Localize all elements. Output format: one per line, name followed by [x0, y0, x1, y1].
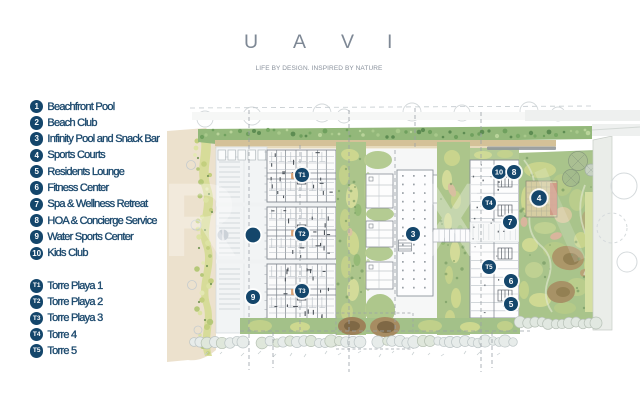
svg-text:8: 8 [512, 167, 517, 177]
svg-text:9: 9 [251, 292, 256, 302]
svg-text:3: 3 [411, 229, 416, 239]
svg-text:T3: T3 [298, 288, 306, 295]
svg-text:5: 5 [509, 299, 514, 309]
svg-text:R: R [162, 162, 238, 279]
svg-text:X: X [416, 162, 486, 279]
svg-text:T1: T1 [298, 172, 306, 179]
svg-text:T2: T2 [298, 231, 306, 238]
svg-text:10: 10 [495, 168, 503, 177]
svg-text:4: 4 [537, 193, 542, 203]
svg-text:T4: T4 [485, 200, 493, 207]
svg-text:6: 6 [509, 276, 514, 286]
svg-text:T5: T5 [485, 264, 493, 271]
svg-text:7: 7 [508, 217, 513, 227]
